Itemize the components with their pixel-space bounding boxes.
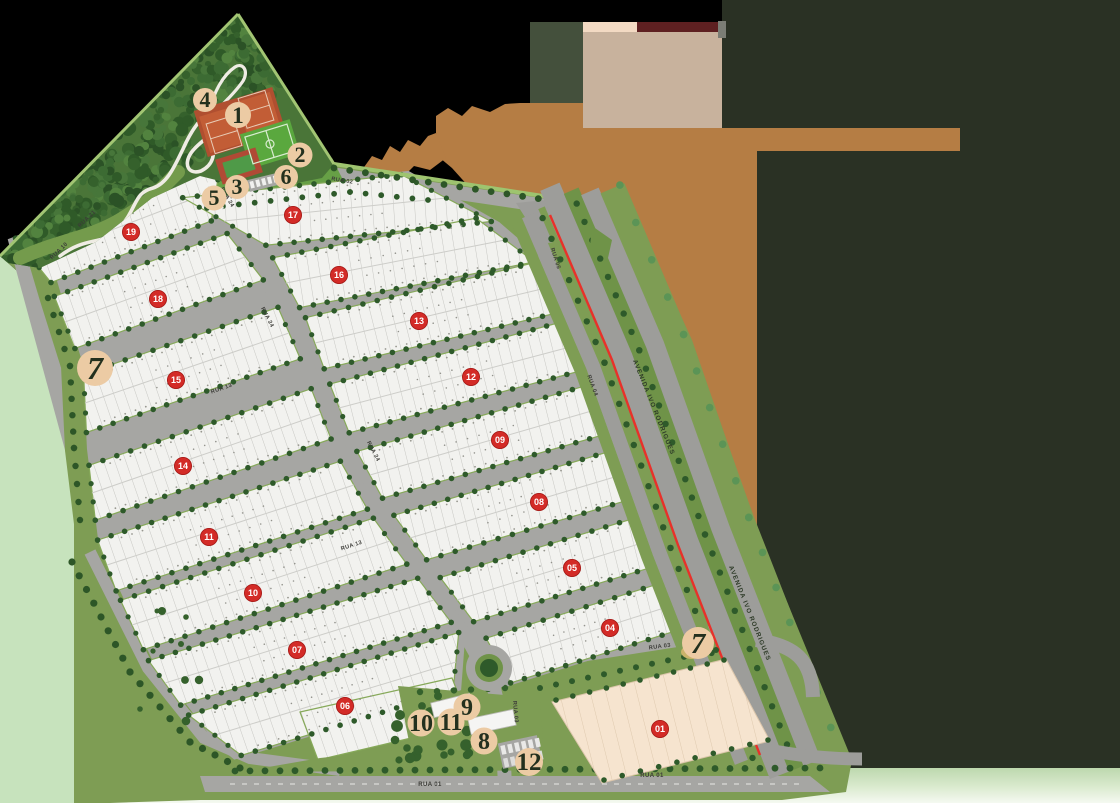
svg-text:3: 3	[232, 174, 243, 199]
svg-text:05: 05	[567, 563, 577, 573]
svg-text:08: 08	[534, 497, 544, 507]
svg-text:12: 12	[466, 372, 476, 382]
svg-text:7: 7	[691, 628, 707, 660]
svg-text:07: 07	[292, 645, 302, 655]
svg-text:12: 12	[517, 749, 542, 776]
svg-text:15: 15	[171, 375, 181, 385]
svg-text:11: 11	[204, 532, 214, 542]
svg-text:01: 01	[655, 724, 665, 734]
svg-text:1: 1	[232, 103, 244, 128]
svg-text:13: 13	[414, 316, 424, 326]
svg-text:11: 11	[440, 710, 463, 736]
svg-text:06: 06	[340, 701, 350, 711]
svg-text:4: 4	[200, 87, 211, 112]
svg-text:8: 8	[478, 729, 490, 755]
svg-text:04: 04	[605, 623, 615, 633]
svg-text:16: 16	[334, 270, 344, 280]
svg-text:7: 7	[87, 350, 105, 386]
svg-text:10: 10	[248, 588, 258, 598]
svg-text:09: 09	[495, 435, 505, 445]
svg-text:RUA 01: RUA 01	[640, 773, 664, 779]
svg-text:RUA 01: RUA 01	[418, 782, 442, 788]
svg-text:5: 5	[209, 185, 220, 210]
svg-text:2: 2	[295, 142, 306, 167]
svg-text:18: 18	[153, 294, 163, 304]
svg-text:6: 6	[281, 164, 292, 189]
svg-text:17: 17	[288, 210, 298, 220]
svg-text:14: 14	[178, 461, 188, 471]
svg-text:19: 19	[126, 227, 136, 237]
svg-text:10: 10	[409, 711, 433, 737]
